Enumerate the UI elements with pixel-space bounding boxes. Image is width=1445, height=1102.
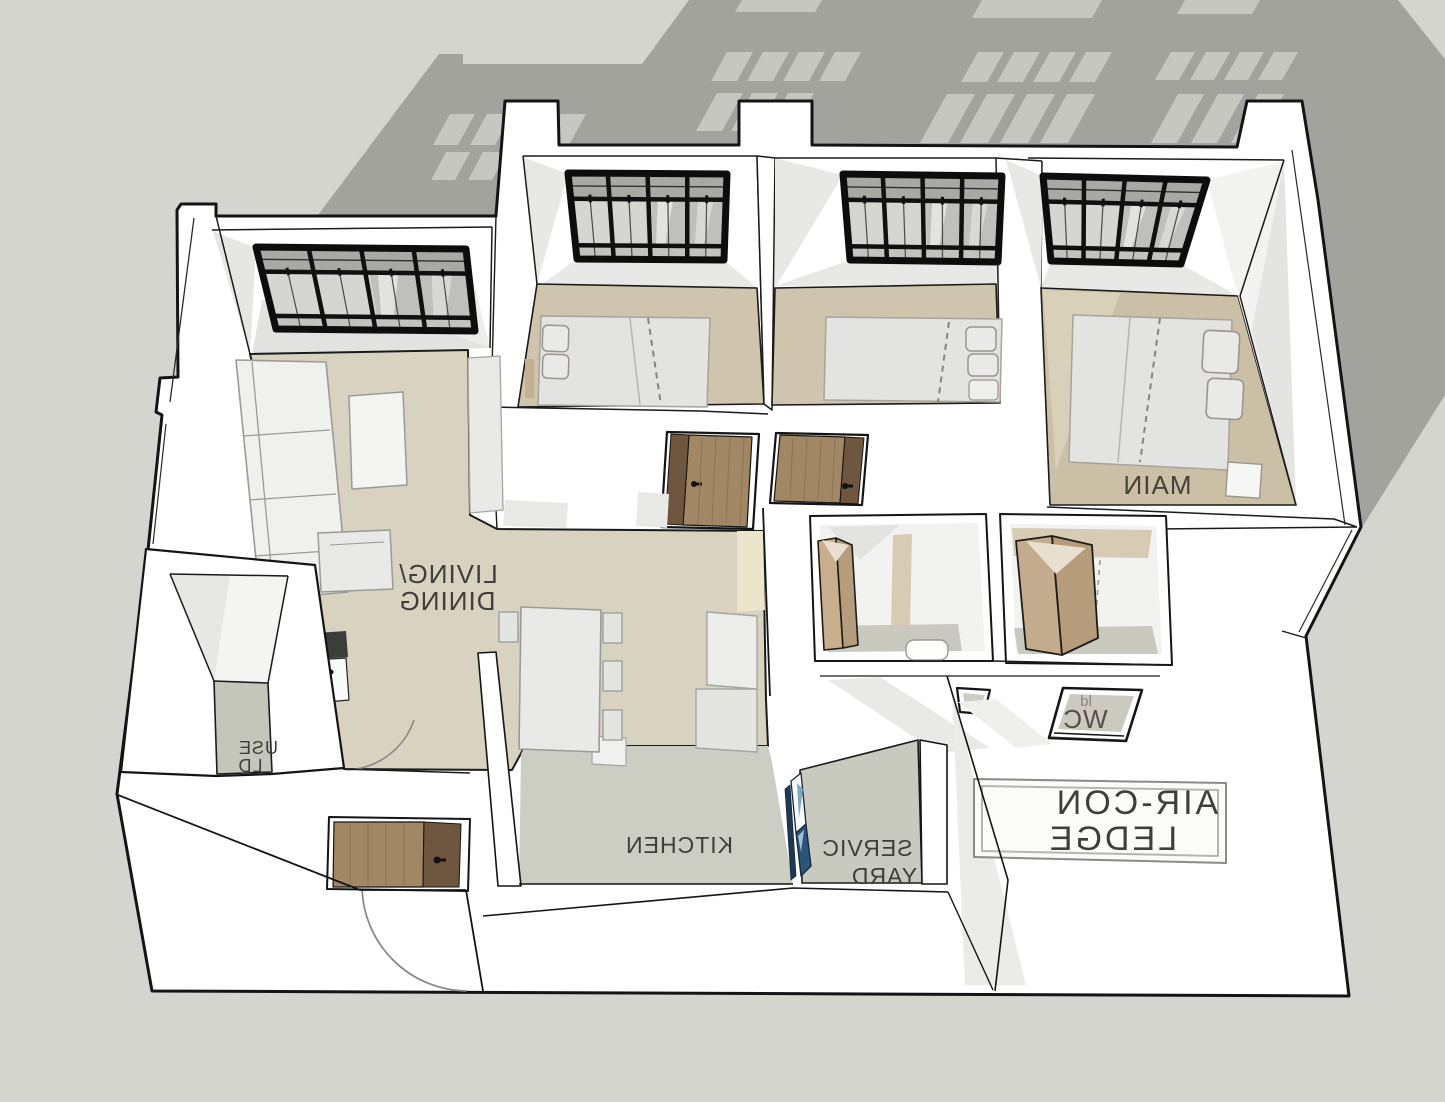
svg-text:MAIN: MAIN: [1123, 470, 1192, 500]
svg-text:LIVING/: LIVING/: [398, 559, 497, 589]
svg-text:AIR-CON: AIR-CON: [1054, 784, 1219, 822]
svg-text:YARD: YARD: [851, 863, 917, 889]
svg-text:ld: ld: [1080, 693, 1092, 710]
svg-text:LD: LD: [237, 756, 262, 776]
svg-text:LEDGE: LEDGE: [1047, 820, 1177, 858]
svg-text:DINING: DINING: [399, 586, 496, 616]
svg-text:KITCHEN: KITCHEN: [625, 832, 733, 858]
svg-text:SERVIC: SERVIC: [821, 835, 912, 861]
svg-text:USE: USE: [238, 738, 278, 758]
